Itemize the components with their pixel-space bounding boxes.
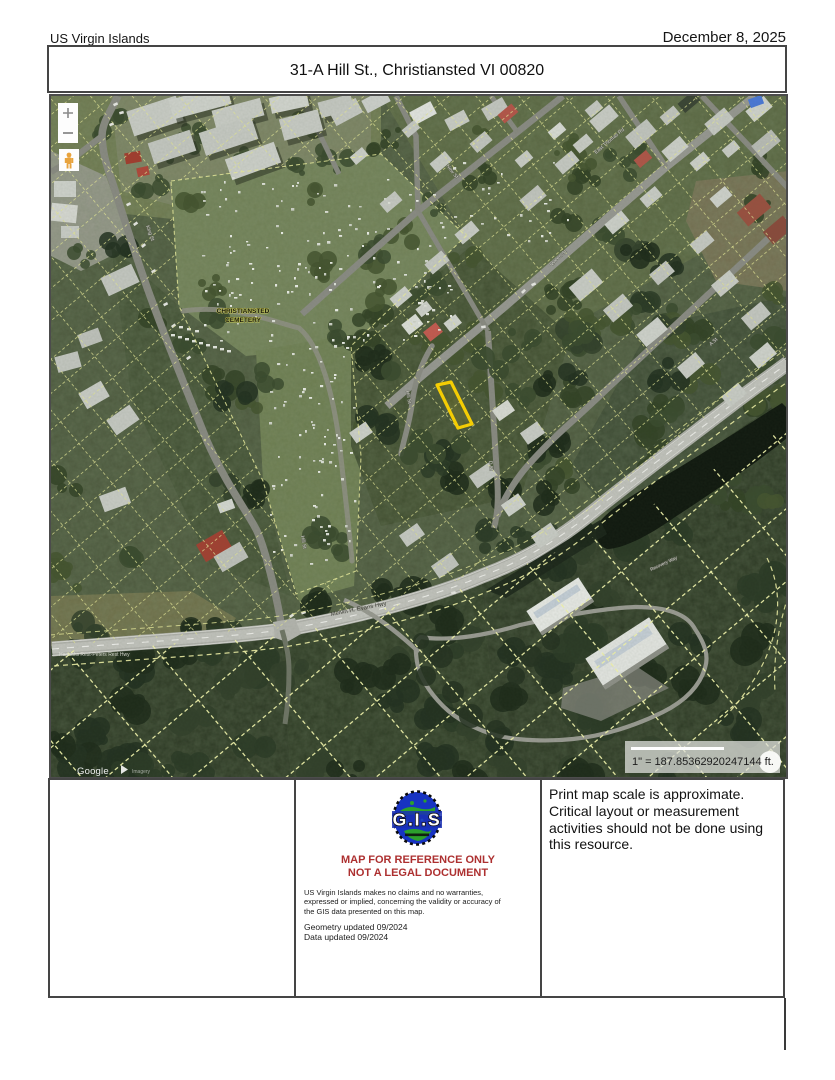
svg-text:G.I.S: G.I.S [393, 810, 442, 830]
svg-text:Imagery: Imagery [132, 769, 151, 775]
svg-text:1" = 187.85362920247144 ft.: 1" = 187.85362920247144 ft. [632, 756, 774, 768]
svg-text:Google: Google [77, 766, 109, 777]
